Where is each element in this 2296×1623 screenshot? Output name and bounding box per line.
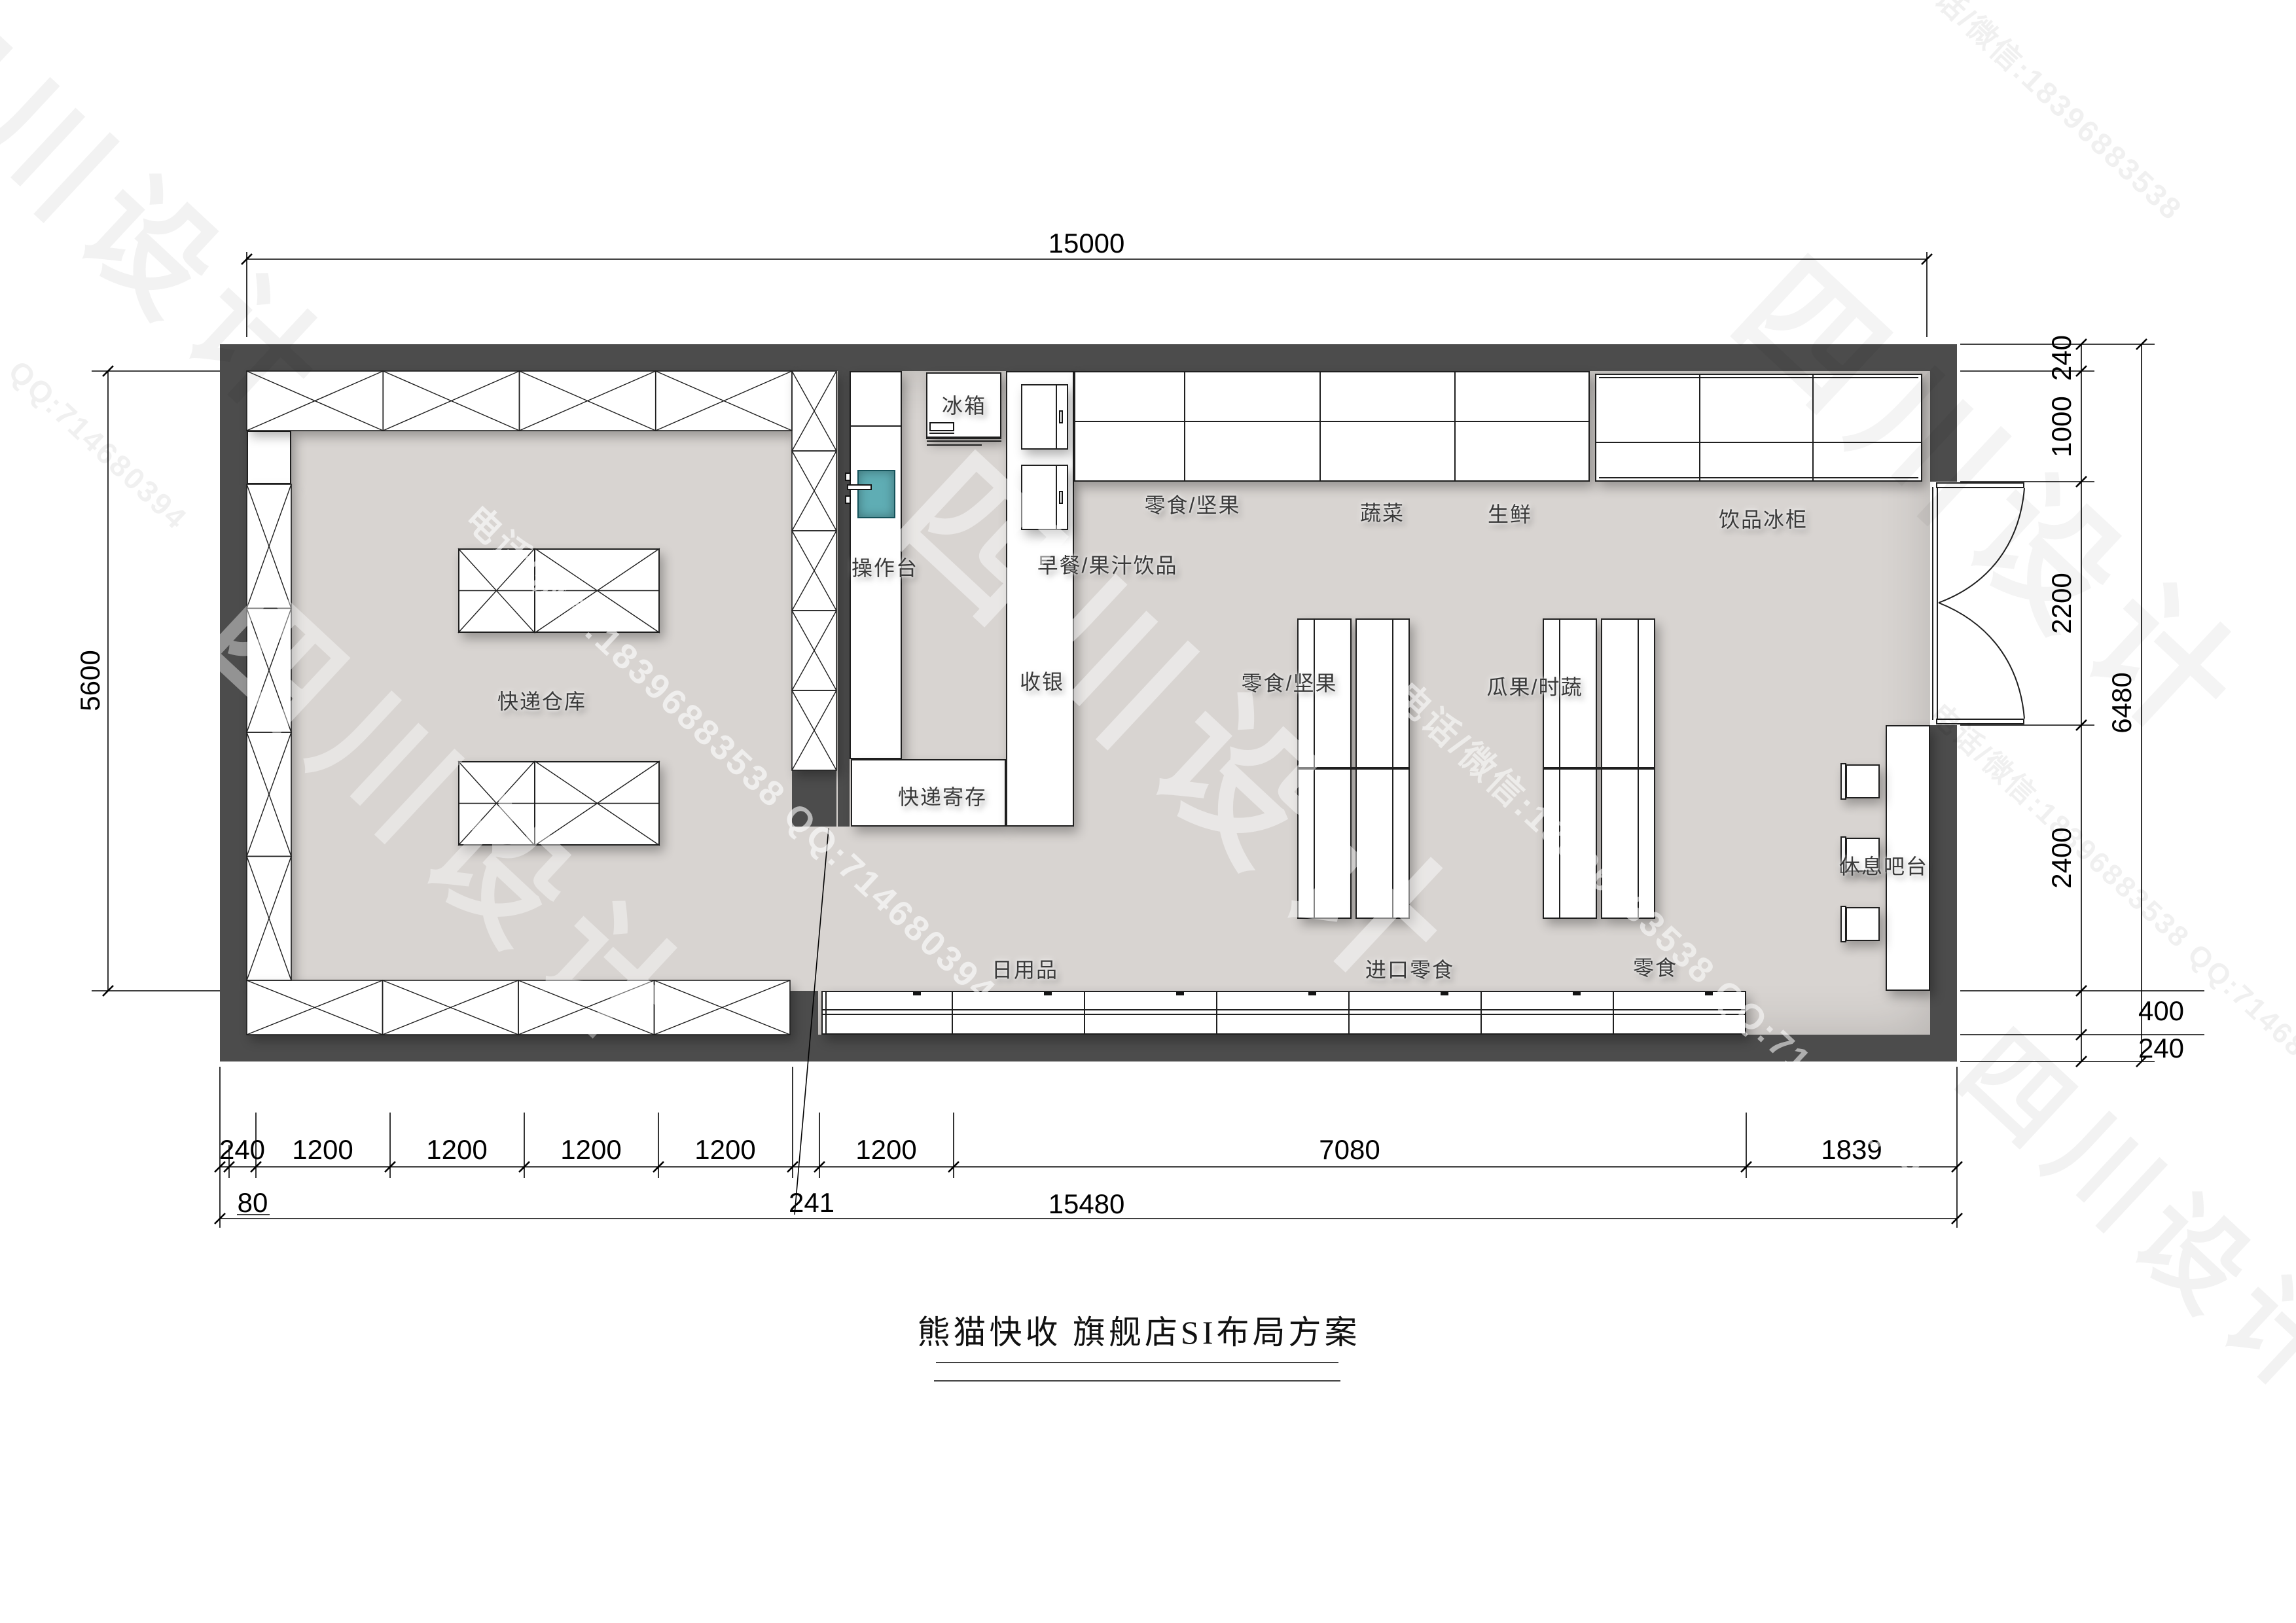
- dim-text: 5600: [75, 650, 106, 711]
- dim-tick: [215, 1213, 225, 1224]
- x-table-2: [458, 761, 660, 846]
- shelf-mark-1: [913, 992, 921, 995]
- shelf-mark-6: [1573, 992, 1581, 995]
- cabinet-handle-1: [1059, 410, 1063, 423]
- label-imported-snacks: 进口零食: [1365, 954, 1454, 984]
- label-snacks: 零食: [1633, 952, 1677, 982]
- dim-text: 80: [238, 1187, 268, 1219]
- label-drink-freezer: 饮品冰柜: [1719, 503, 1808, 533]
- label-express-warehouse: 快递仓库: [497, 685, 586, 715]
- watermark-text: 四川设计: [1932, 991, 2296, 1431]
- top-shelf-left: [1074, 371, 1590, 482]
- dim-tick: [2136, 339, 2147, 349]
- wall-bottom: [220, 1035, 1957, 1061]
- dim-tick: [2076, 986, 2087, 996]
- dim-text: 15480: [1049, 1188, 1125, 1220]
- wall-left: [220, 344, 247, 1061]
- dim-tick: [242, 254, 252, 264]
- partition-wall: [838, 371, 850, 827]
- dim-tick: [2076, 339, 2087, 349]
- label-breakfast-juice: 早餐/果汁饮品: [1037, 549, 1178, 579]
- gondola-1-right: [1355, 618, 1410, 919]
- dim-tick: [103, 366, 113, 376]
- dim-tick: [2076, 1056, 2087, 1067]
- dim-text: 1000: [2046, 396, 2077, 457]
- label-cashier: 收银: [1020, 666, 1064, 696]
- dim-text: 1200: [694, 1134, 755, 1166]
- door-arc-bottom: [1939, 603, 2024, 719]
- label-fresh-food: 生鲜: [1488, 498, 1532, 528]
- label-vegetables: 蔬菜: [1360, 497, 1405, 527]
- gondola-2-right: [1601, 618, 1655, 919]
- stool-3: [1846, 907, 1880, 941]
- dim-tick: [1741, 1162, 1751, 1172]
- bottom-shelf-row: [821, 991, 1746, 1035]
- dim-text: 400: [2138, 995, 2184, 1027]
- sink-knob-1: [845, 473, 851, 481]
- label-snacks-nuts-gondola: 零食/坚果: [1242, 667, 1338, 697]
- mid-dark-stub: [790, 991, 818, 1035]
- label-fruits-vegetables: 瓜果/时蔬: [1487, 671, 1583, 701]
- label-parcel-storage: 快递寄存: [898, 781, 987, 811]
- label-operation-counter: 操作台: [852, 552, 918, 582]
- watermark-text: 电话/微信:18396883538: [1903, 0, 2193, 229]
- dim-tick: [948, 1162, 959, 1172]
- dim-tick: [2076, 476, 2087, 487]
- dim-text: 7080: [1319, 1134, 1380, 1166]
- shelf-mark-2: [1044, 992, 1052, 995]
- top-shelf-right: [1595, 374, 1922, 482]
- label-daily-necessities: 日用品: [992, 954, 1058, 984]
- watermark-text: 电话/微信:18396883538 QQ:714680394: [1922, 692, 2296, 1114]
- warehouse-bottom-shelving: [247, 980, 790, 1035]
- dim-text: 1200: [855, 1134, 916, 1166]
- shelf-mark-4: [1308, 992, 1316, 995]
- shelf-mark-3: [1176, 992, 1184, 995]
- wall-top: [220, 344, 1957, 371]
- gondola-2-left: [1543, 618, 1597, 919]
- dim-tick: [2076, 1029, 2087, 1040]
- dim-text: 6480: [2106, 672, 2138, 733]
- floor-plan-sheet: 熊猫快收 旗舰店SI布局方案 1500056002401000220024006…: [0, 0, 2296, 1623]
- door-leaf-top: [1936, 482, 2024, 488]
- dim-tick: [653, 1162, 664, 1172]
- mid-shelving-column: [792, 371, 836, 770]
- dim-text: 1200: [292, 1134, 353, 1166]
- stool-1: [1846, 764, 1880, 798]
- dim-tick: [2076, 366, 2087, 376]
- door-leaf-bottom: [1936, 719, 2024, 724]
- dim-tick: [519, 1162, 529, 1172]
- dim-text: 1839: [1821, 1134, 1882, 1166]
- dim-tick: [2076, 720, 2087, 730]
- dim-tick: [787, 1162, 798, 1172]
- x-table-1: [458, 548, 660, 633]
- drawing-title: 熊猫快收 旗舰店SI布局方案: [918, 1306, 1361, 1353]
- dim-tick: [1952, 1213, 1962, 1224]
- dim-tick: [814, 1162, 825, 1172]
- dim-tick: [103, 986, 113, 996]
- dim-text: 15000: [1049, 228, 1125, 259]
- label-snacks-nuts-wall: 零食/坚果: [1145, 489, 1241, 519]
- wall-right-lower: [1930, 725, 1957, 1061]
- dim-text: 241: [789, 1187, 834, 1219]
- mid-dark-block: [792, 770, 836, 827]
- left-cap-box: [247, 431, 291, 484]
- shelf-mark-5: [1441, 992, 1448, 995]
- dim-text: 240: [219, 1134, 265, 1166]
- door-arc-top: [1939, 488, 2024, 603]
- dim-text: 2200: [2046, 573, 2077, 633]
- wall-right-upper: [1930, 344, 1957, 482]
- sink-faucet: [847, 484, 872, 490]
- dim-text: 1200: [426, 1134, 487, 1166]
- dim-tick: [1922, 254, 1932, 264]
- sink: [857, 470, 895, 518]
- dim-text: 240: [2046, 335, 2077, 381]
- fridge-appliance: [929, 422, 954, 431]
- warehouse-top-shelving: [247, 371, 792, 431]
- shelf-mark-7: [1705, 992, 1713, 995]
- cabinet-handle-2: [1059, 491, 1063, 504]
- dim-text: 2400: [2046, 827, 2077, 888]
- dim-text: 1200: [560, 1134, 621, 1166]
- sink-knob-2: [845, 495, 851, 504]
- warehouse-left-shelving: [247, 484, 291, 980]
- dim-tick: [385, 1162, 395, 1172]
- gondola-1-left: [1297, 618, 1352, 919]
- watermark-text: QQ:714680394: [1, 353, 194, 537]
- label-fridge: 冰箱: [942, 389, 986, 419]
- dim-tick: [1952, 1162, 1962, 1172]
- label-rest-bar: 休息吧台: [1839, 850, 1928, 880]
- dim-text: 240: [2138, 1033, 2184, 1064]
